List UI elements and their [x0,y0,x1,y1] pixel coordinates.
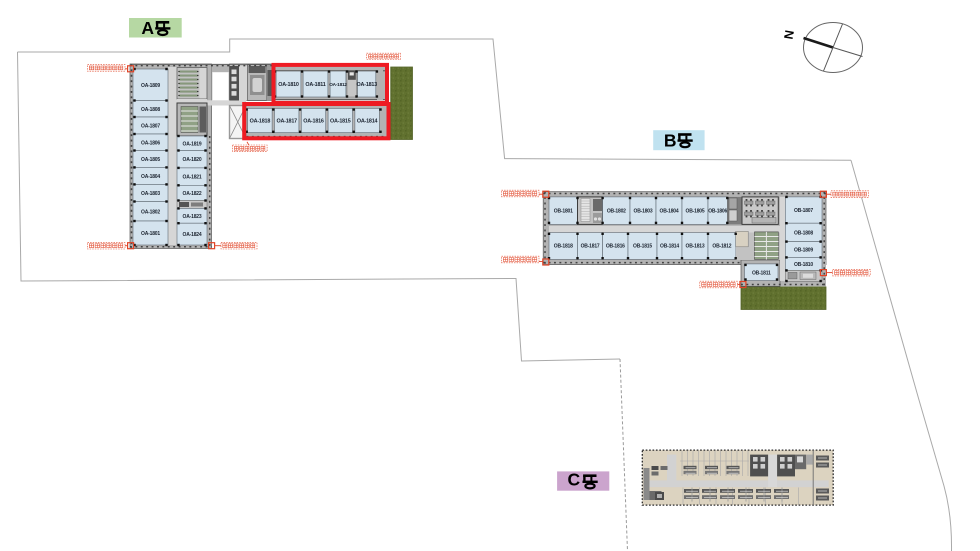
svg-text:OB-1801: OB-1801 [554,209,573,215]
svg-text:OA-1816: OA-1816 [303,119,324,125]
svg-text:OA-1815: OA-1815 [330,119,351,125]
svg-text:OB-1818: OB-1818 [554,244,573,250]
svg-text:OB-1804: OB-1804 [660,209,679,215]
svg-text:OB-1803: OB-1803 [634,209,653,215]
svg-text:OA-1801: OA-1801 [141,231,160,237]
svg-text:OA-1821: OA-1821 [183,175,202,181]
svg-text:OB-1808: OB-1808 [794,230,813,236]
svg-text:OA-1812: OA-1812 [329,82,347,87]
svg-text:OA-1813: OA-1813 [357,82,378,88]
svg-text:OA-1810: OA-1810 [278,82,299,88]
svg-text:C: C [568,469,581,489]
svg-text:OA-1804: OA-1804 [141,174,160,180]
svg-text:OA-1823: OA-1823 [183,214,202,220]
svg-text:OA-1807: OA-1807 [141,124,160,130]
svg-text:B: B [664,130,677,150]
svg-text:OB-1812: OB-1812 [712,244,731,250]
svg-text:OA-1819: OA-1819 [183,141,202,147]
svg-text:OA-1808: OA-1808 [141,107,160,113]
svg-text:OA-1814: OA-1814 [357,119,378,125]
svg-text:OA-1803: OA-1803 [141,191,160,197]
svg-text:OA-1805: OA-1805 [141,157,160,163]
svg-text:OA-1809: OA-1809 [141,83,160,89]
svg-text:OB-1816: OB-1816 [606,244,625,250]
svg-text:OA-1822: OA-1822 [183,191,202,197]
svg-text:OB-1809: OB-1809 [794,248,813,254]
svg-text:OA-1802: OA-1802 [141,209,160,215]
svg-text:OA-1824: OA-1824 [183,232,202,238]
svg-text:OB-1805: OB-1805 [686,209,705,215]
svg-text:OB-1806: OB-1806 [708,209,727,215]
svg-text:OA-1806: OA-1806 [141,140,160,146]
svg-text:OB-1814: OB-1814 [660,244,679,250]
svg-text:A: A [141,18,154,38]
svg-text:OA-1817: OA-1817 [276,119,297,125]
svg-text:OB-1807: OB-1807 [794,208,813,214]
svg-text:OA-1811: OA-1811 [305,82,325,88]
svg-text:OB-1802: OB-1802 [607,209,626,215]
svg-text:OB-1811: OB-1811 [752,271,771,277]
svg-text:OB-1815: OB-1815 [633,244,652,250]
svg-text:OB-1810: OB-1810 [794,262,813,268]
svg-text:OB-1813: OB-1813 [686,244,705,250]
svg-text:OA-1818: OA-1818 [250,119,271,125]
svg-text:OB-1817: OB-1817 [581,244,600,250]
svg-text:OA-1820: OA-1820 [183,157,202,163]
